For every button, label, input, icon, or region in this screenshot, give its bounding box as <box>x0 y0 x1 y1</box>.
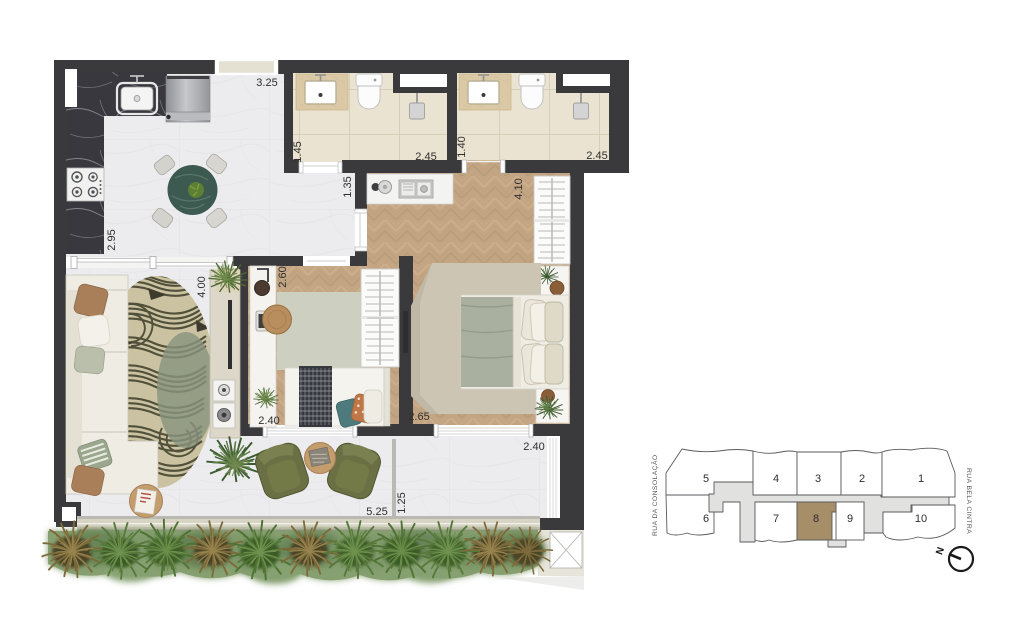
svg-text:5: 5 <box>703 473 709 485</box>
svg-text:2.95: 2.95 <box>106 229 118 250</box>
svg-text:2.45: 2.45 <box>586 150 607 162</box>
svg-text:1.40: 1.40 <box>456 136 468 157</box>
svg-text:8: 8 <box>813 513 819 525</box>
svg-text:4: 4 <box>773 473 779 485</box>
svg-text:2: 2 <box>859 473 865 485</box>
svg-text:5.25: 5.25 <box>366 506 387 518</box>
svg-text:2.45: 2.45 <box>415 151 436 163</box>
svg-text:2.40: 2.40 <box>258 415 279 427</box>
svg-text:10: 10 <box>915 513 927 525</box>
svg-text:2.60: 2.60 <box>277 266 289 287</box>
svg-text:1.35: 1.35 <box>342 176 354 197</box>
svg-text:4.00: 4.00 <box>196 276 208 297</box>
svg-text:1.45: 1.45 <box>292 141 304 162</box>
svg-text:RUA DA CONSOLAÇÃO: RUA DA CONSOLAÇÃO <box>650 454 659 536</box>
svg-text:3: 3 <box>815 473 821 485</box>
svg-text:7: 7 <box>773 513 779 525</box>
svg-text:3.25: 3.25 <box>256 77 277 89</box>
svg-text:1: 1 <box>918 473 924 485</box>
svg-text:1.25: 1.25 <box>396 492 408 513</box>
svg-text:4.10: 4.10 <box>513 178 525 199</box>
svg-text:2.40: 2.40 <box>523 441 544 453</box>
svg-text:9: 9 <box>847 513 853 525</box>
svg-text:2.65: 2.65 <box>408 411 429 423</box>
svg-text:6: 6 <box>703 513 709 525</box>
svg-text:RUA BELA CINTRA: RUA BELA CINTRA <box>965 468 972 534</box>
